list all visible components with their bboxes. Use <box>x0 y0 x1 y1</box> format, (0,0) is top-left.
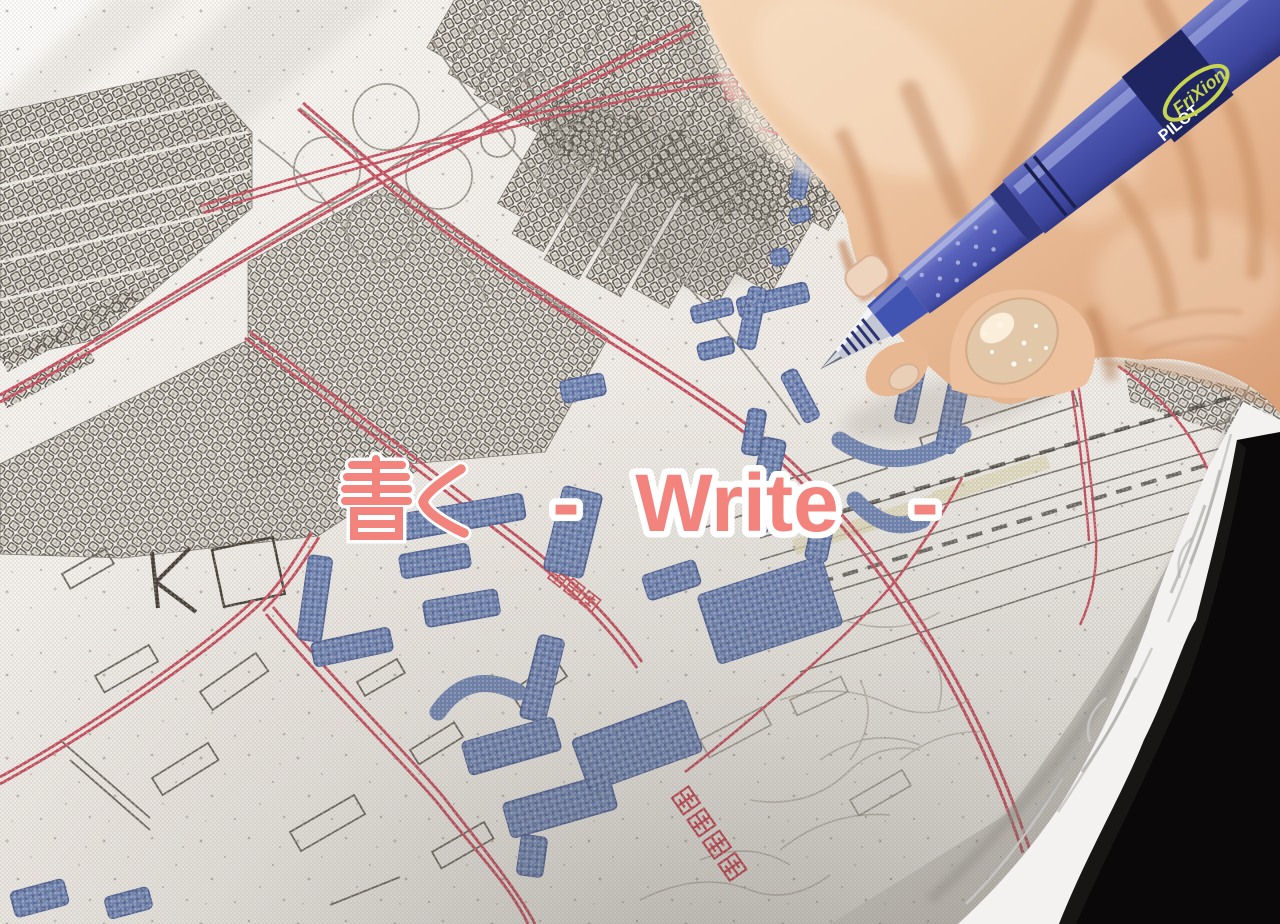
svg-text:Write: Write <box>635 458 839 549</box>
svg-text:-: - <box>911 458 938 549</box>
svg-text:-: - <box>552 458 579 549</box>
